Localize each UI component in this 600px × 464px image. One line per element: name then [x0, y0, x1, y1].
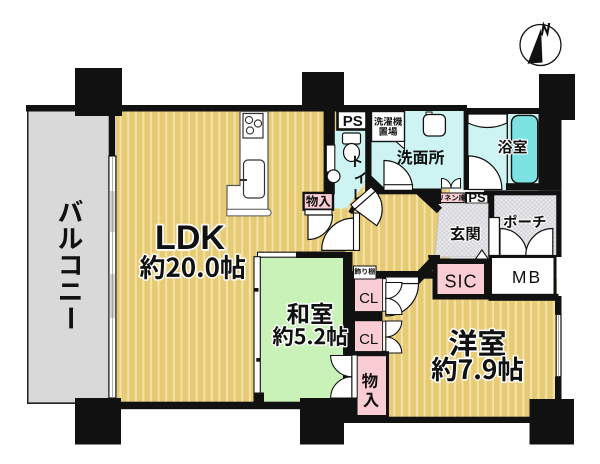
svg-text:PS: PS [343, 113, 363, 130]
svg-text:CL: CL [359, 331, 378, 348]
svg-text:MB: MB [512, 267, 542, 287]
svg-text:LDK: LDK [155, 219, 225, 257]
svg-text:SIC: SIC [444, 272, 477, 292]
svg-text:PS: PS [468, 190, 486, 205]
svg-text:CL: CL [359, 290, 378, 307]
